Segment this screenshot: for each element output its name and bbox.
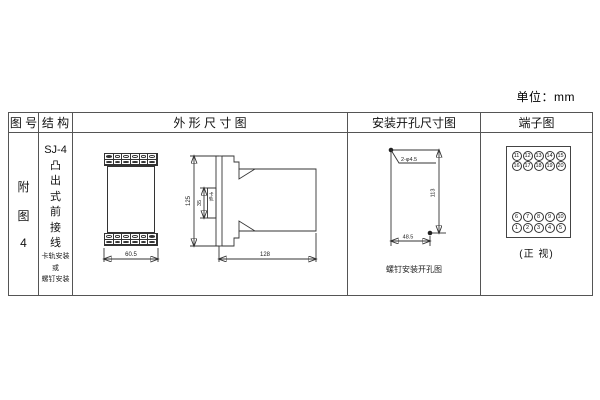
terminal-number: 7 bbox=[523, 212, 533, 222]
terminal-screw-cell bbox=[140, 160, 149, 166]
mounting-hole-cell: 2-φ4.5 48.5 113 螺钉安装开孔图 bbox=[348, 133, 481, 295]
terminal-top-group: 1112131415 1617181920 bbox=[508, 150, 569, 172]
mounting-note-line: 或 bbox=[42, 263, 70, 274]
terminal-screw-cell bbox=[122, 160, 131, 166]
unit-label: 单位：mm bbox=[517, 88, 576, 105]
terminal-box: 1112131415 1617181920 678910 12345 bbox=[506, 146, 571, 238]
terminal-number: 20 bbox=[556, 161, 566, 171]
mounting-note-line: 螺钉安装 bbox=[42, 274, 70, 285]
terminal-screw-cell bbox=[140, 240, 149, 246]
figure-no-char: 4 bbox=[20, 236, 27, 250]
holes-label: 2-φ4.5 bbox=[401, 157, 417, 163]
front-bottom-terminal-block bbox=[104, 233, 158, 246]
terminal-screw-cell bbox=[148, 240, 157, 246]
terminal-screw-cell bbox=[131, 240, 140, 246]
side-body-profile bbox=[222, 156, 316, 246]
mounting-note-line: 卡轨安装 bbox=[42, 251, 70, 262]
terminal-caption: (正 视) bbox=[481, 245, 592, 260]
terminal-row: 12345 bbox=[508, 223, 569, 233]
side-bottom-latch bbox=[239, 221, 255, 231]
front-width-dim: 60.5 bbox=[125, 252, 137, 258]
side-top-latch bbox=[239, 169, 255, 179]
figure-no-char: 附 bbox=[17, 178, 29, 195]
header-structure: 结 构 bbox=[39, 113, 73, 133]
terminal-number: 6 bbox=[512, 212, 522, 222]
terminal-number: 15 bbox=[556, 151, 566, 161]
terminal-number: 18 bbox=[534, 161, 544, 171]
terminal-number: 12 bbox=[523, 151, 533, 161]
figure-no-char: 图 bbox=[17, 207, 29, 224]
terminal-number: 19 bbox=[545, 161, 555, 171]
mounting-hole-bottom bbox=[428, 231, 433, 236]
hole-horizontal-dim: 48.5 bbox=[403, 235, 414, 241]
terminal-screw-cell bbox=[105, 160, 114, 166]
terminal-screw-cell bbox=[122, 240, 131, 246]
dimension-table: 图 号 结 构 外 形 尺 寸 图 安装开孔尺寸图 端子图 附 图 4 SJ-4… bbox=[8, 112, 593, 296]
structure-type-vertical: 凸出式前接线 bbox=[49, 159, 62, 251]
front-top-terminal-block bbox=[104, 153, 158, 166]
terminal-row: 678910 bbox=[508, 212, 569, 222]
terminal-number: 13 bbox=[534, 151, 544, 161]
rail-label: 卡轨 bbox=[209, 191, 215, 203]
terminal-row: 1112131415 bbox=[508, 151, 569, 161]
front-view-body bbox=[107, 166, 155, 233]
terminal-number: 16 bbox=[512, 161, 522, 171]
structure-cell: SJ-4 凸出式前接线 卡轨安装 或 螺钉安装 bbox=[39, 133, 73, 295]
terminal-number: 10 bbox=[556, 212, 566, 222]
terminal-bottom-group: 678910 12345 bbox=[508, 212, 569, 234]
relay-model: SJ-4 bbox=[44, 144, 67, 156]
terminal-number: 11 bbox=[512, 151, 522, 161]
figure-no-cell: 附 图 4 bbox=[9, 133, 39, 295]
terminal-row: 1617181920 bbox=[508, 161, 569, 171]
side-height-dim: 125 bbox=[186, 195, 192, 206]
terminal-number: 4 bbox=[545, 223, 555, 233]
header-terminal-diagram: 端子图 bbox=[481, 113, 592, 133]
side-front-plate bbox=[216, 156, 222, 246]
terminal-number: 8 bbox=[534, 212, 544, 222]
mounting-caption: 螺钉安装开孔图 bbox=[348, 264, 480, 275]
terminal-number: 2 bbox=[523, 223, 533, 233]
header-mounting-holes: 安装开孔尺寸图 bbox=[348, 113, 481, 133]
terminal-number: 14 bbox=[545, 151, 555, 161]
rail-height-dim: 35 bbox=[197, 200, 203, 206]
terminal-number: 9 bbox=[545, 212, 555, 222]
hole-vertical-dim: 113 bbox=[431, 189, 437, 198]
terminal-screw-cell bbox=[105, 240, 114, 246]
datasheet-page: 单位：mm 图 号 结 构 外 形 尺 寸 图 安装开孔尺寸图 端子图 附 图 … bbox=[0, 0, 600, 400]
terminal-number: 1 bbox=[512, 223, 522, 233]
side-depth-dim: 128 bbox=[260, 252, 271, 258]
terminal-screw-cell bbox=[114, 240, 123, 246]
terminal-screw-cell bbox=[114, 160, 123, 166]
terminal-number: 3 bbox=[534, 223, 544, 233]
outline-drawing-cell: 60.5 125 35 卡轨 bbox=[73, 133, 348, 295]
mounting-note: 卡轨安装 或 螺钉安装 bbox=[42, 251, 70, 285]
terminal-diagram-cell: 1112131415 1617181920 678910 12345 (正 视) bbox=[481, 133, 592, 295]
header-figure-no: 图 号 bbox=[9, 113, 39, 133]
terminal-number: 5 bbox=[556, 223, 566, 233]
terminal-number: 17 bbox=[523, 161, 533, 171]
terminal-screw-cell bbox=[148, 160, 157, 166]
terminal-screw-cell bbox=[131, 160, 140, 166]
header-outline-dims: 外 形 尺 寸 图 bbox=[73, 113, 348, 133]
